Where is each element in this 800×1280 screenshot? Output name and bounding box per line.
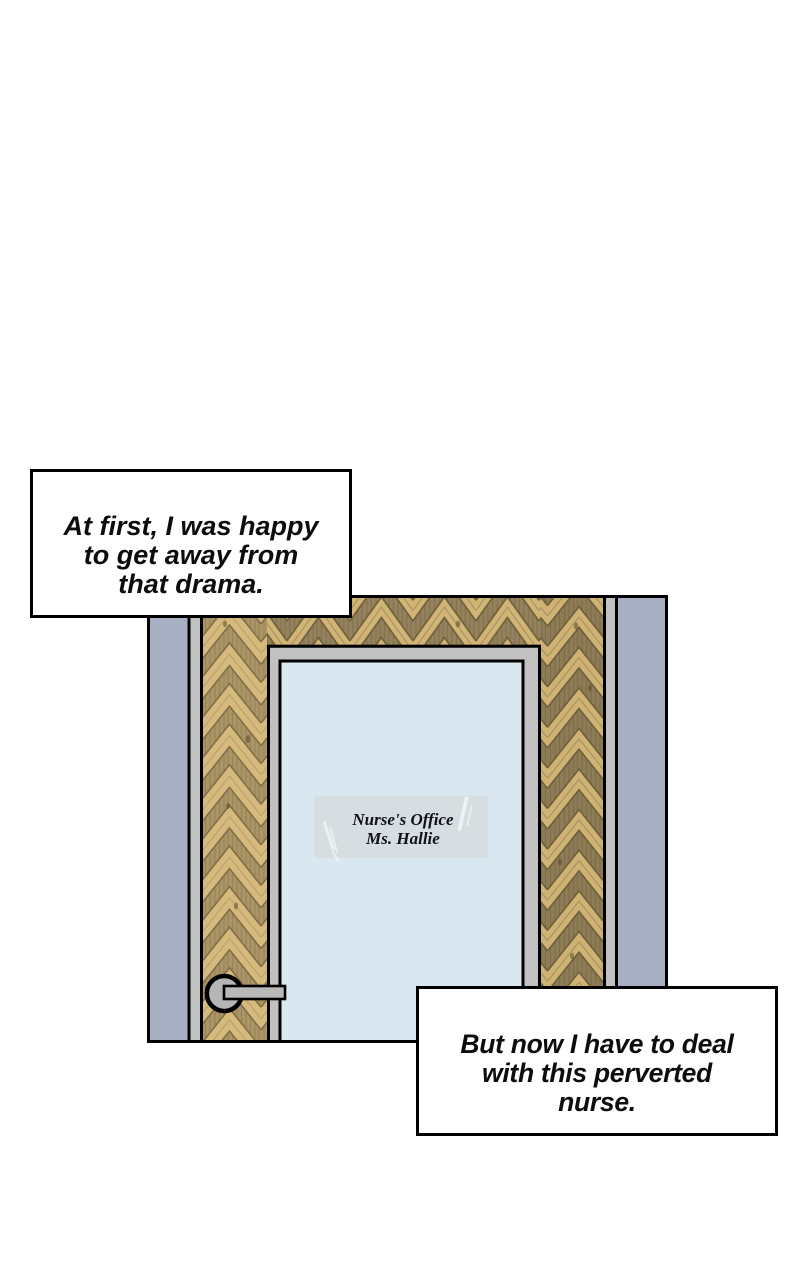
svg-text:Ms. Hallie: Ms. Hallie	[365, 829, 440, 848]
svg-text:Nurse's Office: Nurse's Office	[351, 810, 454, 829]
